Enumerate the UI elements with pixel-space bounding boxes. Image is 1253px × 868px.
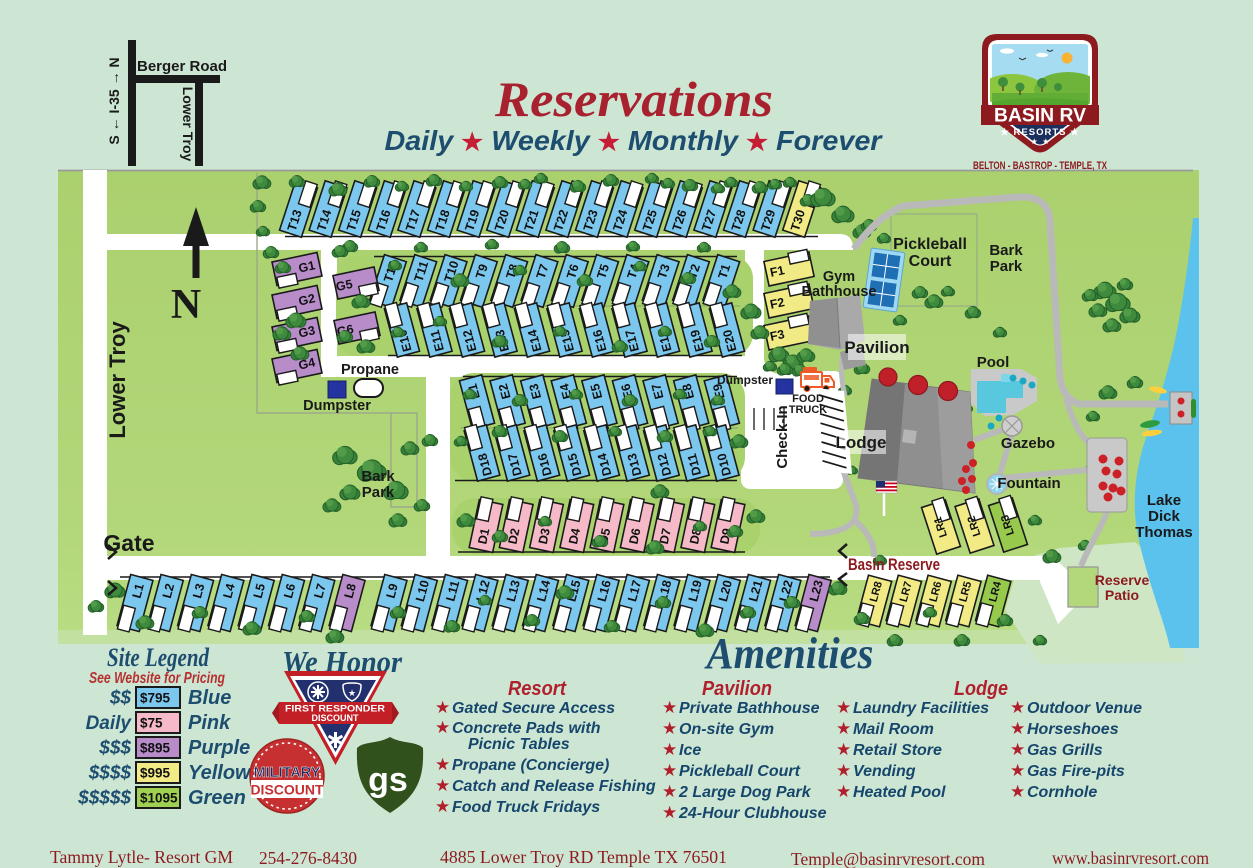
svg-text:Pavilion: Pavilion bbox=[844, 338, 909, 357]
svg-text:★: ★ bbox=[836, 782, 851, 801]
svg-text:★: ★ bbox=[435, 797, 450, 816]
svg-text:★ ★: ★ ★ bbox=[1031, 137, 1050, 146]
svg-text:Site Legend: Site Legend bbox=[107, 643, 210, 672]
svg-text:Bark: Bark bbox=[361, 468, 395, 485]
svg-text:F3: F3 bbox=[769, 327, 786, 344]
svg-text:$$$$: $$$$ bbox=[88, 763, 132, 784]
svg-text:Tammy Lytle- Resort GM: Tammy Lytle- Resort GM bbox=[50, 847, 233, 867]
svg-text:Laundry Facilities: Laundry Facilities bbox=[853, 700, 989, 717]
svg-text:Basin Reserve: Basin Reserve bbox=[848, 555, 940, 574]
svg-text:$795: $795 bbox=[140, 691, 171, 706]
svg-text:$75: $75 bbox=[140, 716, 163, 731]
svg-text:Blue: Blue bbox=[188, 687, 231, 709]
svg-text:Patio: Patio bbox=[1105, 587, 1139, 603]
svg-text:Daily ★ Weekly ★ Monthly ★ For: Daily ★ Weekly ★ Monthly ★ Forever bbox=[385, 125, 884, 156]
svg-text:DISCOUNT: DISCOUNT bbox=[312, 713, 360, 723]
svg-text:2 Large Dog Park: 2 Large Dog Park bbox=[678, 784, 812, 801]
svg-text:FIRST RESPONDER: FIRST RESPONDER bbox=[285, 704, 386, 714]
svg-text:See Website for Pricing: See Website for Pricing bbox=[89, 670, 225, 687]
svg-text:Bathhouse: Bathhouse bbox=[802, 284, 877, 300]
svg-text:★: ★ bbox=[1010, 740, 1025, 759]
svg-text:Vending: Vending bbox=[853, 763, 916, 780]
svg-text:★: ★ bbox=[1010, 719, 1025, 738]
svg-text:★: ★ bbox=[836, 740, 851, 759]
svg-text:Lower Troy: Lower Troy bbox=[180, 87, 196, 162]
svg-text:★: ★ bbox=[836, 698, 851, 717]
svg-text:Bark: Bark bbox=[989, 242, 1023, 259]
svg-text:Cornhole: Cornhole bbox=[1027, 784, 1097, 801]
svg-text:★: ★ bbox=[662, 719, 677, 738]
svg-text:Gazebo: Gazebo bbox=[1001, 435, 1055, 452]
svg-text:Temple@basinrvresort.com: Temple@basinrvresort.com bbox=[791, 849, 985, 868]
svg-text:Reservations: Reservations bbox=[494, 71, 773, 127]
svg-text:Reserve: Reserve bbox=[1095, 572, 1150, 588]
svg-text:★: ★ bbox=[435, 755, 450, 774]
svg-text:Green: Green bbox=[188, 787, 246, 809]
svg-text:Heated Pool: Heated Pool bbox=[853, 784, 946, 801]
svg-text:Pink: Pink bbox=[188, 712, 231, 734]
svg-text:★: ★ bbox=[1010, 698, 1025, 717]
svg-text:★: ★ bbox=[1010, 761, 1025, 780]
svg-text:Horseshoes: Horseshoes bbox=[1027, 721, 1119, 738]
svg-text:Lake: Lake bbox=[1147, 492, 1181, 509]
svg-text:Private Bathhouse: Private Bathhouse bbox=[679, 700, 820, 717]
svg-text:$$$: $$$ bbox=[98, 738, 131, 759]
svg-text:★: ★ bbox=[836, 761, 851, 780]
svg-text:Gated Secure Access: Gated Secure Access bbox=[452, 700, 615, 717]
svg-text:Park: Park bbox=[362, 484, 395, 501]
svg-text:Food Truck Fridays: Food Truck Fridays bbox=[452, 799, 600, 816]
svg-text:Berger Road: Berger Road bbox=[137, 58, 227, 75]
svg-text:Lodge: Lodge bbox=[954, 678, 1008, 700]
svg-text:Pavilion: Pavilion bbox=[702, 678, 772, 700]
svg-text:★: ★ bbox=[662, 698, 677, 717]
svg-text:Retail Store: Retail Store bbox=[853, 742, 942, 759]
svg-text:★: ★ bbox=[435, 718, 450, 737]
svg-text:S ← I-35 → N: S ← I-35 → N bbox=[106, 57, 122, 144]
svg-text:★: ★ bbox=[435, 776, 450, 795]
svg-text:$$: $$ bbox=[109, 688, 132, 709]
svg-text:★: ★ bbox=[662, 761, 677, 780]
svg-text:Dumpster: Dumpster bbox=[717, 373, 773, 387]
svg-text:MILITARY: MILITARY bbox=[254, 765, 321, 781]
svg-text:Ice: Ice bbox=[679, 742, 701, 759]
svg-text:Mail Room: Mail Room bbox=[853, 721, 934, 738]
svg-text:Resort: Resort bbox=[508, 678, 567, 700]
svg-text:$$$$$: $$$$$ bbox=[77, 788, 131, 809]
svg-text:Yellow: Yellow bbox=[188, 762, 252, 784]
svg-text:★: ★ bbox=[1010, 782, 1025, 801]
svg-text:Pool: Pool bbox=[977, 354, 1010, 371]
svg-text:Dumpster: Dumpster bbox=[303, 398, 371, 414]
svg-text:Lodge: Lodge bbox=[836, 433, 887, 452]
svg-text:★: ★ bbox=[662, 782, 677, 801]
svg-text:N: N bbox=[171, 282, 201, 328]
svg-text:Check-In: Check-In bbox=[774, 405, 791, 468]
svg-text:Gate: Gate bbox=[103, 530, 154, 556]
svg-text:F2: F2 bbox=[769, 295, 786, 312]
svg-text:Court: Court bbox=[909, 253, 952, 270]
svg-text:BASIN RV: BASIN RV bbox=[994, 106, 1086, 127]
svg-text:F1: F1 bbox=[769, 263, 786, 280]
svg-text:$1095: $1095 bbox=[140, 791, 178, 806]
svg-text:Propane (Concierge): Propane (Concierge) bbox=[452, 757, 609, 774]
svg-text:Gas Fire-pits: Gas Fire-pits bbox=[1027, 763, 1125, 780]
svg-text:Gas Grills: Gas Grills bbox=[1027, 742, 1103, 759]
svg-text:Purple: Purple bbox=[188, 737, 250, 759]
svg-text:★: ★ bbox=[662, 803, 677, 822]
svg-text:Gym: Gym bbox=[823, 269, 855, 285]
svg-text:Park: Park bbox=[990, 258, 1023, 275]
svg-text:$895: $895 bbox=[140, 741, 171, 756]
svg-text:DISCOUNT: DISCOUNT bbox=[250, 782, 324, 798]
svg-text:Lower Troy: Lower Troy bbox=[105, 321, 130, 439]
svg-text:24-Hour Clubhouse: 24-Hour Clubhouse bbox=[678, 805, 827, 822]
svg-text:www.basinrvresort.com: www.basinrvresort.com bbox=[1052, 848, 1209, 868]
svg-text:Thomas: Thomas bbox=[1135, 524, 1193, 541]
svg-text:TRUCK: TRUCK bbox=[789, 404, 828, 416]
svg-text:Daily: Daily bbox=[86, 713, 133, 734]
svg-text:★: ★ bbox=[662, 740, 677, 759]
svg-text:Outdoor Venue: Outdoor Venue bbox=[1027, 700, 1142, 717]
svg-text:★: ★ bbox=[836, 719, 851, 738]
svg-text:Dick: Dick bbox=[1148, 508, 1180, 525]
svg-text:Concrete Pads with: Concrete Pads with bbox=[452, 720, 601, 737]
svg-text:Pickleball: Pickleball bbox=[893, 236, 967, 253]
svg-text:4885 Lower Troy RD Temple TX 7: 4885 Lower Troy RD Temple TX 76501 bbox=[440, 847, 727, 867]
svg-text:Pickleball Court: Pickleball Court bbox=[679, 763, 801, 780]
svg-text:BELTON - BASTROP - TEMPLE, TX: BELTON - BASTROP - TEMPLE, TX bbox=[973, 160, 1107, 172]
svg-text:$995: $995 bbox=[140, 766, 171, 781]
svg-text:Fountain: Fountain bbox=[997, 475, 1060, 492]
svg-text:On-site Gym: On-site Gym bbox=[679, 721, 774, 738]
svg-text:gs: gs bbox=[368, 761, 408, 799]
svg-text:★: ★ bbox=[435, 698, 450, 717]
svg-text:Amenities: Amenities bbox=[704, 629, 874, 678]
svg-text:Catch and Release Fishing: Catch and Release Fishing bbox=[452, 778, 656, 795]
svg-text:254-276-8430: 254-276-8430 bbox=[259, 848, 357, 868]
svg-text:★: ★ bbox=[348, 688, 356, 698]
svg-text:Picnic Tables: Picnic Tables bbox=[468, 736, 570, 753]
svg-text:Propane: Propane bbox=[341, 362, 399, 378]
